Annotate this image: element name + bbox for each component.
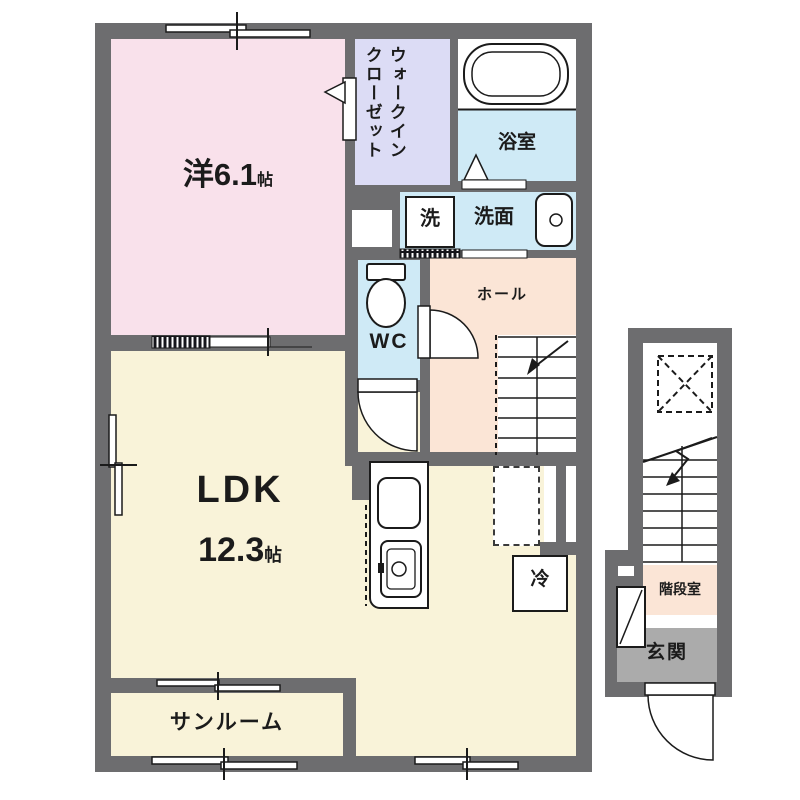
duct-slot-b: [566, 466, 576, 542]
label-bath: 浴室: [458, 133, 576, 154]
floor-plan: 洋6.1帖 ウォークイン クローゼット 浴室 洗 洗面 WC ホール LDK 1…: [0, 0, 800, 800]
label-ldk-size: 12.3帖: [140, 532, 340, 569]
hall-stairs-area: [498, 335, 576, 455]
duct-divider-wall: [556, 466, 566, 542]
label-stairwell: 階段室: [643, 582, 717, 597]
label-ldk: LDK: [140, 470, 340, 512]
stairwell-step-strip: [643, 615, 717, 628]
duct-bottom-wall: [540, 542, 576, 555]
label-wc: WC: [358, 330, 420, 353]
duct-slot-a: [544, 466, 556, 542]
room-ldk-door-nook: [358, 392, 420, 452]
under-stairs-storage: [493, 466, 540, 546]
label-washroom: 洗面: [458, 206, 530, 228]
label-wic-line2: クローゼット: [362, 46, 381, 160]
label-wic-line1: ウォークイン: [386, 46, 405, 160]
room-wc: [358, 260, 420, 380]
closet-opening: [352, 210, 392, 247]
kitchen-wall: [345, 452, 576, 466]
sunroom-wall-right: [343, 693, 356, 756]
label-entrance: 玄関: [627, 643, 707, 664]
label-sunroom: サンルーム: [117, 711, 337, 734]
label-hall: ホール: [455, 287, 550, 304]
kitchen-wall-stub: [352, 466, 370, 500]
label-laundry: 洗: [405, 208, 455, 230]
label-fridge: 冷: [512, 570, 568, 591]
stair-building-stairwell-white: [643, 343, 717, 565]
entrance-wall-notch: [618, 566, 634, 576]
bathtub-area: [458, 39, 576, 110]
sunroom-wall-top: [111, 678, 356, 693]
label-western-room: 洋6.1帖: [108, 158, 348, 192]
